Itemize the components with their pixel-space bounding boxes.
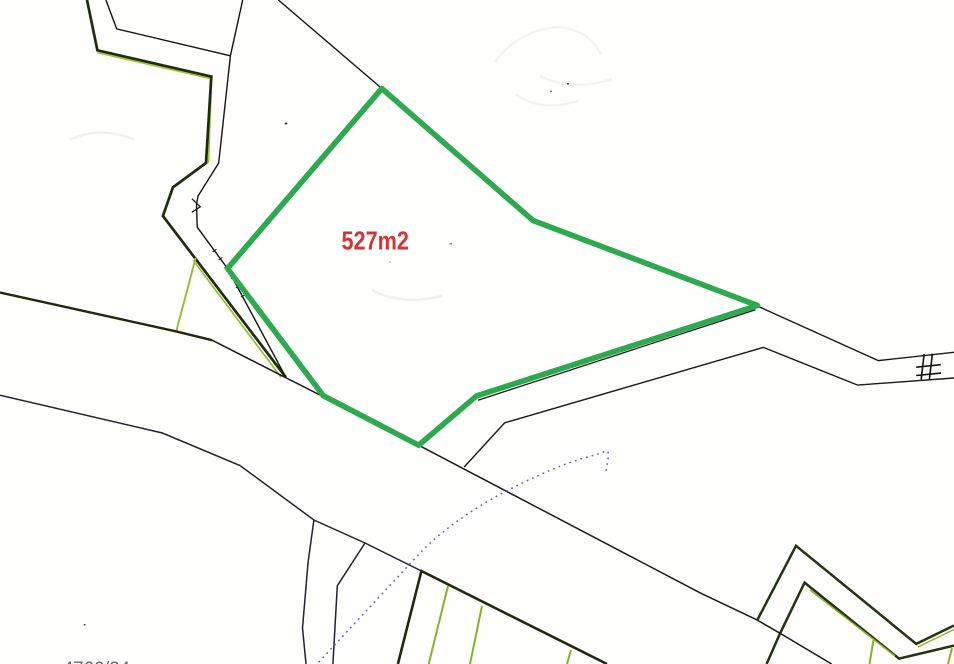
svg-text:4766/24: 4766/24	[63, 658, 130, 664]
svg-text:527m2: 527m2	[342, 228, 409, 256]
